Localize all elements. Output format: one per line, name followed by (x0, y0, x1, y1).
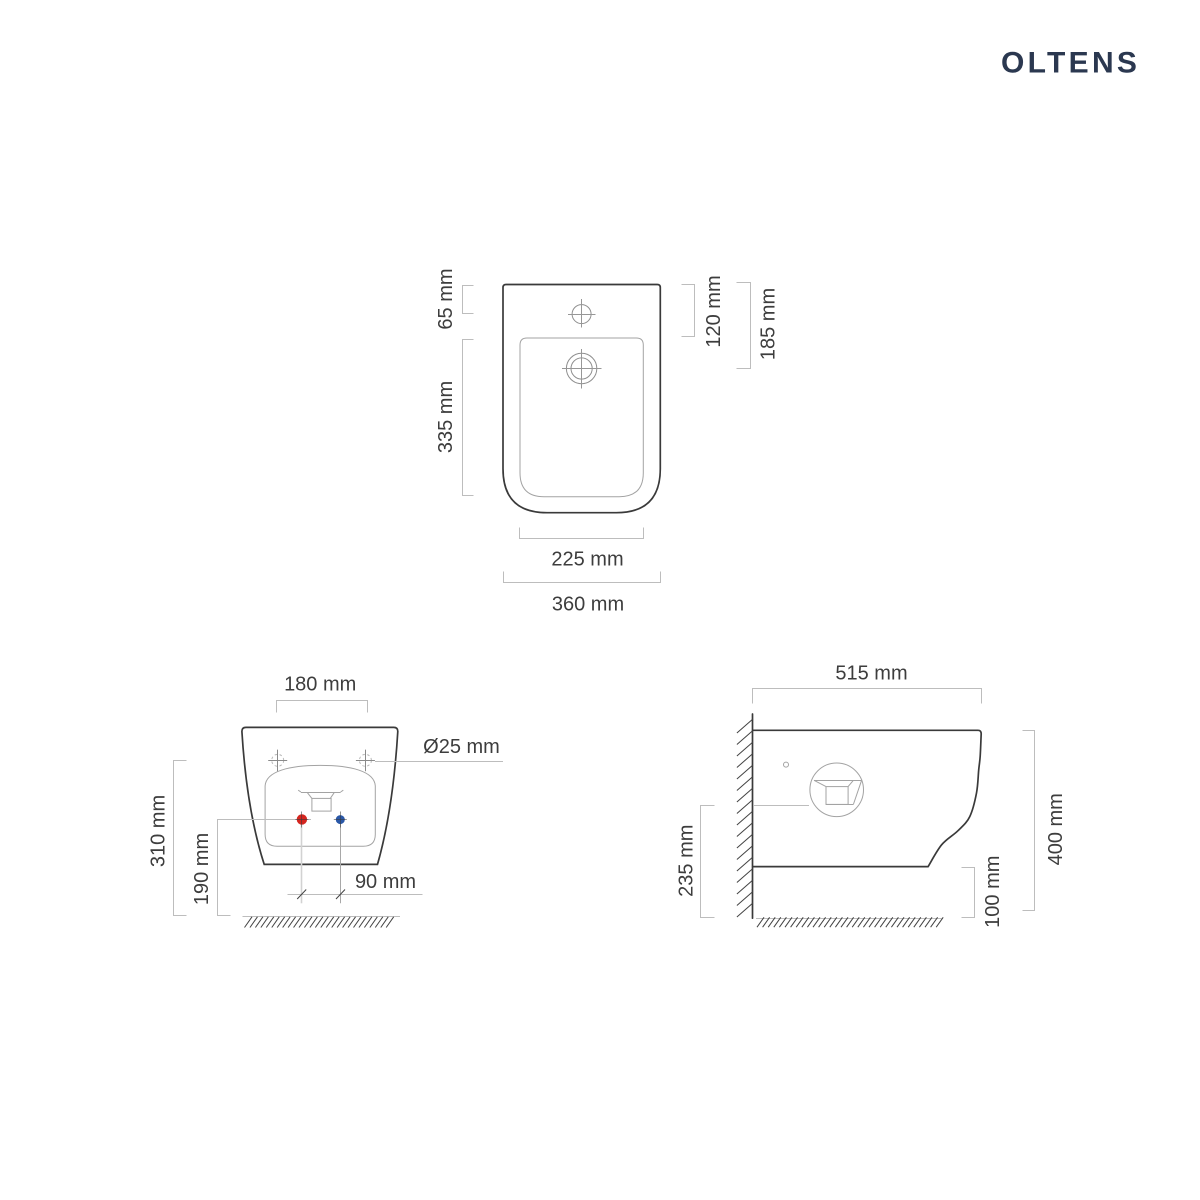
svg-text:65 mm: 65 mm (435, 268, 457, 329)
svg-text:90 mm: 90 mm (355, 871, 416, 893)
svg-text:190 mm: 190 mm (191, 833, 213, 905)
svg-text:100 mm: 100 mm (982, 856, 1004, 928)
svg-text:400 mm: 400 mm (1045, 793, 1067, 865)
svg-text:360 mm: 360 mm (552, 593, 624, 615)
svg-text:Ø25 mm: Ø25 mm (423, 736, 500, 758)
svg-text:185 mm: 185 mm (758, 288, 780, 360)
svg-text:335 mm: 335 mm (435, 381, 457, 453)
svg-text:310 mm: 310 mm (147, 795, 169, 867)
svg-text:225 mm: 225 mm (551, 548, 623, 570)
svg-text:235 mm: 235 mm (676, 825, 698, 897)
svg-text:120 mm: 120 mm (703, 275, 725, 347)
svg-text:515 mm: 515 mm (835, 662, 907, 684)
svg-text:OLTENS: OLTENS (1001, 47, 1140, 80)
svg-text:180 mm: 180 mm (284, 674, 356, 696)
